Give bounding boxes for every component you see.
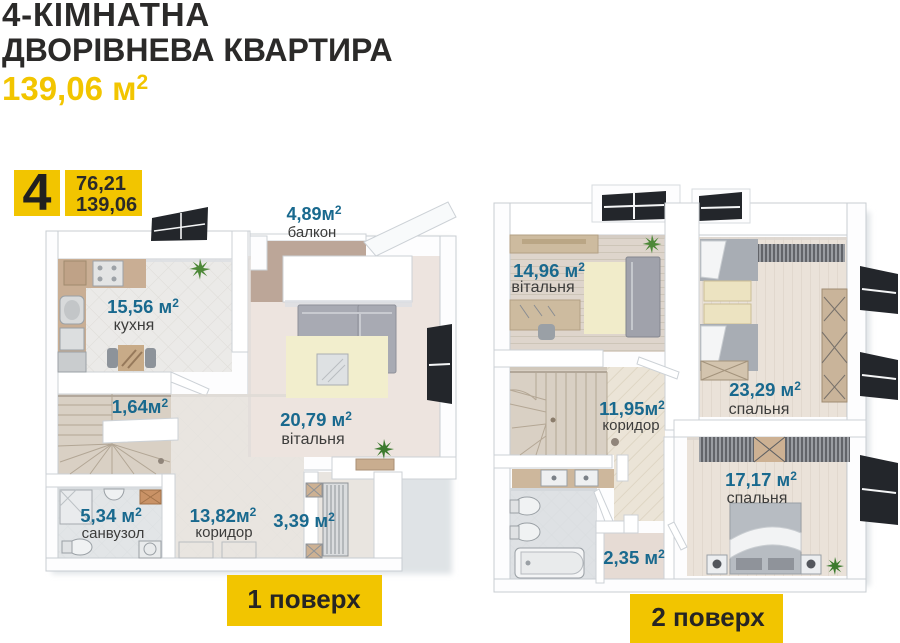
svg-text:139,06 м2: 139,06 м2 [2,70,148,107]
svg-text:1 поверх: 1 поверх [247,584,361,614]
svg-text:4,89м2: 4,89м2 [286,203,341,224]
svg-text:коридор: коридор [195,524,252,541]
svg-text:3,39 м2: 3,39 м2 [273,510,335,531]
svg-text:вітальня: вітальня [281,431,344,448]
svg-text:коридор: коридор [602,417,659,434]
svg-text:1,64м2: 1,64м2 [112,396,169,417]
svg-text:4: 4 [23,164,52,222]
svg-text:76,21: 76,21 [76,173,126,195]
svg-text:кухня: кухня [114,317,155,334]
svg-text:2,35 м2: 2,35 м2 [603,547,665,568]
svg-text:139,06: 139,06 [76,194,137,216]
svg-text:23,29 м2: 23,29 м2 [729,379,801,400]
svg-text:4-КІМНАТНА: 4-КІМНАТНА [2,0,210,33]
svg-text:санвузол: санвузол [82,525,145,542]
svg-text:вітальня: вітальня [511,279,574,296]
svg-text:балкон: балкон [288,224,337,241]
svg-text:14,96 м2: 14,96 м2 [513,260,585,281]
svg-text:спальня: спальня [729,401,790,418]
svg-text:ДВОРІВНЕВА КВАРТИРА: ДВОРІВНЕВА КВАРТИРА [2,32,393,68]
svg-text:2 поверх: 2 поверх [651,602,765,632]
svg-text:15,56 м2: 15,56 м2 [107,296,179,317]
svg-text:20,79 м2: 20,79 м2 [280,409,352,430]
svg-text:спальня: спальня [727,490,788,507]
svg-text:13,82м2: 13,82м2 [190,505,257,526]
svg-text:5,34 м2: 5,34 м2 [80,505,142,526]
svg-text:17,17 м2: 17,17 м2 [725,469,797,490]
svg-text:11,95м2: 11,95м2 [599,398,665,419]
